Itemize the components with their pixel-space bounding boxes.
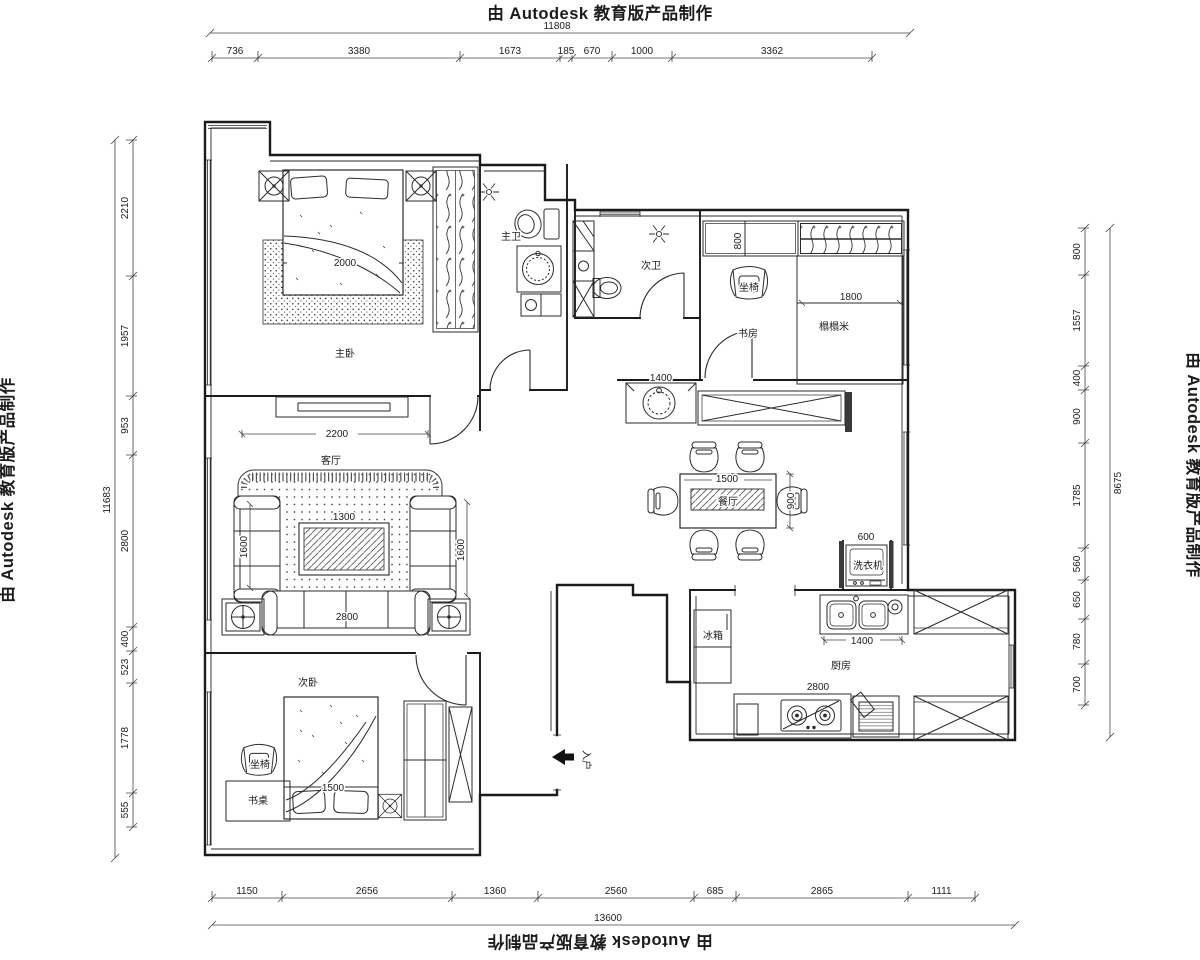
interior-dim-sink-counter: 1400 (851, 636, 874, 647)
crossed-cabinet (449, 707, 472, 802)
interior-dim-master-bed-width: 2000 (334, 258, 357, 269)
dim-line (126, 823, 137, 831)
dim-line (126, 136, 137, 144)
wall-column (845, 392, 852, 432)
dim-line (254, 51, 262, 62)
dim-left: 555 (120, 801, 131, 818)
dim-total-bottom: 13600 (594, 913, 622, 924)
dim-right: 1785 (1072, 484, 1083, 507)
room-label-kitchen: 厨房 (831, 659, 851, 672)
interior-dim-washer-w: 600 (858, 532, 875, 543)
room-label-dining-room: 餐厅 (718, 495, 738, 508)
wardrobe2 (404, 701, 446, 820)
vanity (517, 246, 561, 292)
dim-bottom: 1360 (484, 886, 507, 897)
dining-chair (648, 487, 678, 515)
room-label-study: 书房 (738, 327, 758, 340)
master-bath-door (490, 350, 530, 390)
floorplan-drawing: 7363380167318567010003362118082210195795… (0, 0, 1200, 960)
dim-right: 800 (1072, 243, 1083, 260)
interior-dim-closet-depth: 800 (733, 232, 744, 249)
dim-line (732, 891, 740, 902)
interior-dim-sofa-left: 1600 (239, 535, 250, 558)
dim-line (690, 891, 698, 902)
dim-line (126, 789, 137, 797)
dim-right: 1557 (1072, 309, 1083, 332)
furniture-label-entry: 入户 (580, 750, 593, 770)
master-wardrobe (433, 167, 478, 332)
closet (703, 221, 798, 256)
tv-cabinet (276, 397, 408, 417)
dim-line (448, 891, 456, 902)
floorplan-page: 7363380167318567010003362118082210195795… (0, 0, 1200, 960)
dim-left: 523 (120, 658, 131, 675)
room-label-second-bath: 次卫 (641, 259, 661, 272)
dim-left: 1957 (120, 324, 131, 347)
room-label-tatami: 榻榻米 (819, 320, 849, 333)
dim-line (1078, 576, 1089, 584)
dim-line (1078, 701, 1089, 709)
dim-left: 953 (120, 417, 131, 434)
dim-total-right: 8675 (1113, 471, 1124, 494)
dim-bottom: 2865 (811, 886, 834, 897)
dim-line (208, 51, 216, 62)
master-bedroom-door (430, 396, 478, 444)
dim-right: 650 (1072, 591, 1083, 608)
room-label-living-room: 客厅 (321, 454, 341, 467)
ceiling-fan-icon (378, 794, 401, 817)
dim-line (126, 623, 137, 631)
dim-top: 3362 (761, 46, 784, 57)
interior-dim-sofa-long: 2800 (336, 612, 359, 623)
dim-line (868, 51, 876, 62)
second-bedroom-door (416, 655, 466, 705)
dim-bottom: 2656 (356, 886, 379, 897)
furniture-label-chair-study: 坐椅 (739, 281, 759, 294)
dim-left: 1778 (120, 726, 131, 749)
kitchen-appliance (850, 692, 899, 737)
entry-arrow-icon (552, 749, 574, 765)
dim-left: 2800 (120, 529, 131, 552)
master-bedroom (259, 167, 478, 332)
master-bath (479, 184, 561, 317)
dining-chair (736, 442, 764, 472)
coffee-table (299, 523, 389, 575)
dim-line (971, 891, 979, 902)
interior-dim-basin-cabinet: 1400 (650, 373, 673, 384)
stove-counter (734, 694, 851, 738)
dim-line (1078, 362, 1089, 370)
master-bed (283, 170, 403, 295)
dim-line (904, 891, 912, 902)
interior-dim-dining-table-d: 900 (786, 492, 797, 509)
dim-top: 1000 (631, 46, 654, 57)
dim-right: 400 (1072, 369, 1083, 386)
dim-left: 2210 (120, 196, 131, 219)
tatami-platform (797, 256, 903, 384)
interior-dim-coffee-table: 1300 (333, 512, 356, 523)
ac-ceiling-icon (406, 171, 436, 201)
washer-nook-wall (889, 541, 894, 588)
bed2 (284, 697, 378, 819)
dining-chair (690, 442, 718, 472)
basin-cabinet (626, 383, 696, 423)
dim-line (126, 272, 137, 280)
fridge (694, 610, 731, 683)
room-label-master-bath: 主卫 (501, 231, 521, 243)
dim-line (1078, 615, 1089, 623)
dim-line (608, 51, 616, 62)
room-label-second-bedroom: 次卧 (298, 676, 318, 689)
bath-shelf-column (573, 221, 594, 317)
dim-top: 3380 (348, 46, 371, 57)
stamp-right: 由 Autodesk 教育版产品制作 (1184, 352, 1200, 577)
stamp-left: 由 Autodesk 教育版产品制作 (0, 377, 17, 602)
dim-line (1078, 224, 1089, 232)
dim-total-left: 11683 (102, 486, 113, 514)
room-label-master-bedroom: 主卧 (335, 347, 355, 360)
dim-line (1078, 544, 1089, 552)
second-bath-door (640, 273, 684, 318)
interior-dim-bed2-width: 1500 (322, 783, 345, 794)
furniture-label-fridge: 冰箱 (703, 629, 723, 642)
furniture-label-washer: 洗衣机 (853, 559, 883, 572)
dim-top: 1673 (499, 46, 522, 57)
sofa-right (410, 496, 456, 602)
kitchen-cabinet-small (737, 704, 758, 735)
interior-dim-sofa-right: 1600 (456, 538, 467, 561)
dim-line (668, 51, 676, 62)
dim-bottom: 2560 (605, 886, 628, 897)
dim-bottom: 1111 (931, 886, 951, 897)
interior-dim-stove-counter: 2800 (807, 682, 830, 693)
kitchen (694, 590, 1008, 740)
dim-line (126, 451, 137, 459)
dim-line (278, 891, 286, 902)
interior-dim-dining-table-w: 1500 (716, 474, 739, 485)
dim-right: 900 (1072, 408, 1083, 425)
dim-top: 185 (558, 46, 575, 57)
hanger-wardrobe (798, 221, 904, 256)
dim-line (1078, 439, 1089, 447)
console-cabinet (698, 391, 845, 425)
light-icon (479, 184, 499, 201)
dim-line (456, 51, 464, 62)
dim-right: 560 (1072, 555, 1083, 572)
toilet (593, 278, 621, 299)
washer-nook-wall (839, 541, 844, 588)
dining-chair (690, 530, 718, 560)
dim-bottom: 685 (707, 886, 724, 897)
dim-right: 780 (1072, 633, 1083, 650)
light-icon (649, 226, 669, 243)
crossed-cabinet-top (914, 590, 1008, 634)
dining-chair (736, 530, 764, 560)
dim-line (1078, 271, 1089, 279)
stamp-bottom: 由 Autodesk 教育版产品制作 (487, 932, 712, 952)
interior-dim-tatami-width: 1800 (840, 292, 863, 303)
dim-right: 700 (1072, 676, 1083, 693)
interior-dim-tv-wall: 2200 (326, 429, 349, 440)
furniture-label-chair-bedroom: 坐椅 (250, 758, 270, 771)
end-table-lamp (222, 599, 264, 635)
dim-top: 670 (584, 46, 601, 57)
dim-line (534, 891, 542, 902)
bath-cabinet (521, 294, 561, 316)
dim-line (126, 679, 137, 687)
dim-line (208, 891, 216, 902)
end-table-lamp (428, 599, 470, 635)
dim-line (126, 392, 137, 400)
dim-line (1078, 660, 1089, 668)
crossed-cabinet-bottom (914, 696, 1008, 740)
dim-left: 400 (120, 630, 131, 647)
dim-bottom: 1150 (236, 886, 258, 897)
dim-top: 736 (227, 46, 244, 57)
furniture-label-desk: 书桌 (248, 794, 268, 807)
stamp-top: 由 Autodesk 教育版产品制作 (487, 3, 712, 23)
sink-counter (820, 595, 908, 634)
